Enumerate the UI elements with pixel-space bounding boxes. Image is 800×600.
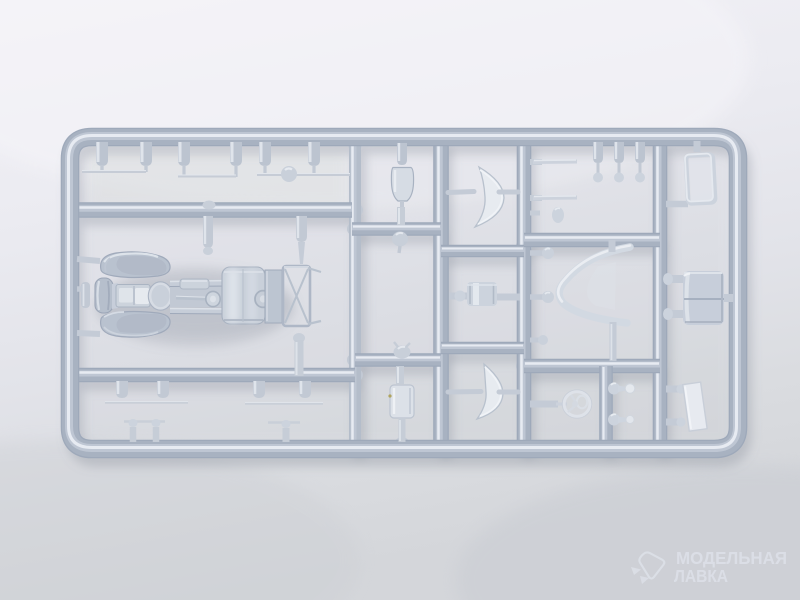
svg-text:МОДЕЛЬНАЯ: МОДЕЛЬНАЯ bbox=[676, 548, 787, 568]
svg-text:ЛАВКА: ЛАВКА bbox=[674, 566, 728, 586]
